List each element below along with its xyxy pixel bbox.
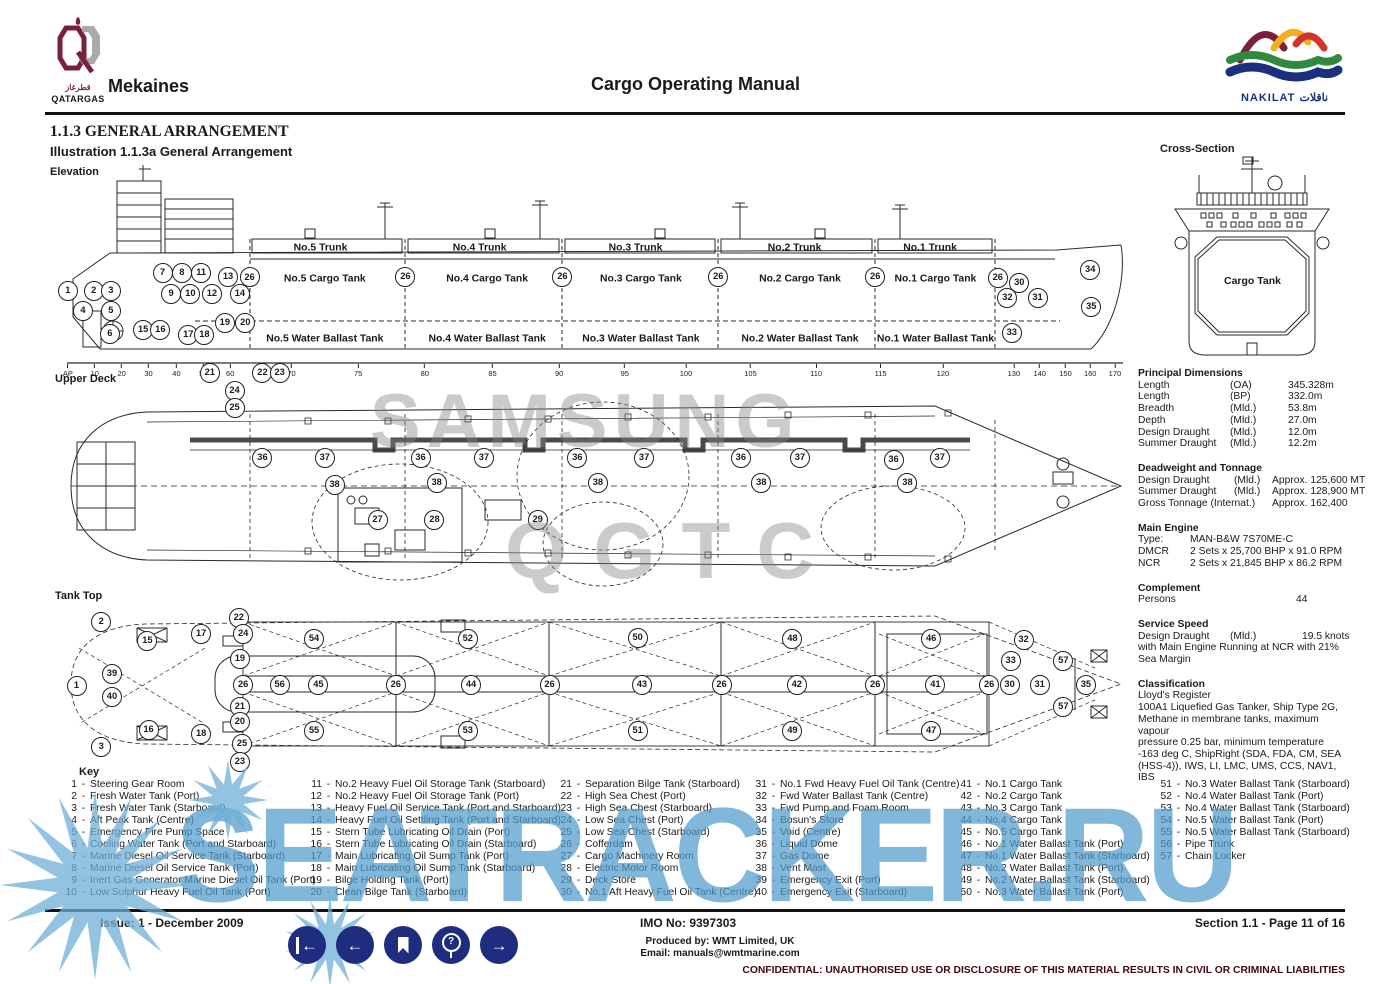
frame-number: 85 xyxy=(488,364,496,378)
principal-dimensions-row: Length(BP)332.0m xyxy=(1138,391,1353,403)
key-item-2: 2-Fresh Water Tank (Port) xyxy=(57,791,316,803)
diagram-label: No.4 Water Ballast Tank xyxy=(429,334,546,345)
callout-circle-26: 26 xyxy=(386,675,406,695)
callout-circle-28: 28 xyxy=(424,510,444,530)
search-button[interactable]: ? xyxy=(432,926,470,964)
key-item-13: 13-Heavy Fuel Oil Service Tank (Port and… xyxy=(302,803,561,815)
key-item-32: 32-Fwd Water Ballast Tank (Centre) xyxy=(747,791,960,803)
classification-line: Lloyd's Register xyxy=(1138,690,1353,702)
service-speed-row: Design Draught(Mld.)19.5 knots xyxy=(1138,631,1353,643)
callout-circle-6: 6 xyxy=(100,324,120,344)
service-speed-section: Service SpeedDesign Draught(Mld.)19.5 kn… xyxy=(1138,619,1353,666)
callout-circle-51: 51 xyxy=(628,721,648,741)
frame-number: 120 xyxy=(937,364,950,378)
classification-line: Methane in membrane tanks, maximum vapou… xyxy=(1138,714,1353,737)
callout-circle-26: 26 xyxy=(233,675,253,695)
main-engine-title: Main Engine xyxy=(1138,523,1353,535)
callout-circle-46: 46 xyxy=(921,629,941,649)
header-divider xyxy=(45,112,1345,115)
callout-circle-16: 16 xyxy=(150,320,170,340)
callout-circle-8: 8 xyxy=(172,263,192,283)
key-item-17: 17-Main Lubricating Oil Sump Tank (Port) xyxy=(302,851,561,863)
footer-imo-number: IMO No: 9397303 xyxy=(640,916,736,930)
deadweight-tonnage-row: Summer Draught(Mld.)Approx. 128,900 MT xyxy=(1138,486,1353,498)
callout-circle-43: 43 xyxy=(632,675,652,695)
diagram-label: No.3 Water Ballast Tank xyxy=(582,334,699,345)
frame-number: 75 xyxy=(354,364,362,378)
key-item-46: 46-No.1 Water Ballast Tank (Port) xyxy=(952,839,1150,851)
key-item-20: 20-Clean Bilge Tank (Starboard) xyxy=(302,887,561,899)
classification-section: ClassificationLloyd's Register100A1 Liqu… xyxy=(1138,679,1353,784)
callout-circle-33: 33 xyxy=(1001,651,1021,671)
key-item-40: 40-Emergency Exit (Starboard) xyxy=(747,887,960,899)
callout-circle-29: 29 xyxy=(528,510,548,530)
callout-circle-24: 24 xyxy=(233,624,253,644)
key-item-12: 12-No.2 Heavy Fuel Oil Storage Tank (Por… xyxy=(302,791,561,803)
cross-section-diagram: Cross-Section xyxy=(1155,143,1350,368)
footer-divider xyxy=(45,909,1345,912)
main-engine-section: Main EngineType:MAN-B&W 7S70ME-CDMCR2 Se… xyxy=(1138,523,1353,570)
callout-circle-26: 26 xyxy=(988,268,1008,288)
callout-circle-38: 38 xyxy=(751,473,771,493)
main-engine-row: DMCR2 Sets x 25,700 BHP x 91.0 RPM xyxy=(1138,546,1353,558)
service-speed-title: Service Speed xyxy=(1138,619,1353,631)
frame-number: 115 xyxy=(875,364,887,378)
callout-circle-38: 38 xyxy=(427,473,447,493)
callout-circle-35: 35 xyxy=(1076,675,1096,695)
key-item-44: 44-No.4 Cargo Tank xyxy=(952,815,1150,827)
key-item-5: 5-Emergency Fire Pump Space xyxy=(57,827,316,839)
key-column-1: 1-Steering Gear Room2-Fresh Water Tank (… xyxy=(57,779,316,899)
callout-circle-54: 54 xyxy=(304,629,324,649)
frame-number: 95 xyxy=(621,364,629,378)
key-item-34: 34-Bosun's Store xyxy=(747,815,960,827)
frame-number: 100 xyxy=(680,364,693,378)
callout-circle-47: 47 xyxy=(921,721,941,741)
frame-number: 140 xyxy=(1033,364,1046,378)
callout-circle-36: 36 xyxy=(731,448,751,468)
key-item-6: 6-Cooling Water Tank (Port and Starboard… xyxy=(57,839,316,851)
next-page-button[interactable] xyxy=(480,926,518,964)
service-speed-line: with Main Engine Running at NCR with 21% xyxy=(1138,642,1353,654)
callout-circle-37: 37 xyxy=(634,448,654,468)
frame-number: 150 xyxy=(1059,364,1072,378)
key-item-3: 3-Fresh Water Tank (Starboard) xyxy=(57,803,316,815)
callout-circle-16: 16 xyxy=(139,720,159,740)
callout-circle-19: 19 xyxy=(230,649,250,669)
callout-circle-36: 36 xyxy=(252,448,272,468)
key-item-43: 43-No.3 Cargo Tank xyxy=(952,803,1150,815)
frame-number: 40 xyxy=(172,364,180,378)
key-item-28: 28-Electric Motor Room xyxy=(552,863,757,875)
diagram-label: No.1 Water Ballast Tank xyxy=(877,334,994,345)
manual-page: قطرغاز QATARGAS Mekaines Cargo Operating… xyxy=(0,0,1391,984)
principal-dimensions-row: Design Draught(Mld.)12.0m xyxy=(1138,427,1353,439)
footer-produced-by: Produced by: WMT Limited, UK xyxy=(630,936,810,947)
callout-circle-37: 37 xyxy=(790,448,810,468)
info-panel: Principal DimensionsLength(OA)345.328mLe… xyxy=(1138,368,1353,797)
document-title: Cargo Operating Manual xyxy=(0,74,1391,95)
principal-dimensions-title: Principal Dimensions xyxy=(1138,368,1353,380)
key-item-14: 14-Heavy Fuel Oil Settling Tank (Port an… xyxy=(302,815,561,827)
complement-section: ComplementPersons44 xyxy=(1138,583,1353,606)
elevation-diagram: 1234567811132691012141516171819202122232… xyxy=(55,163,1130,378)
callout-circle-4: 4 xyxy=(73,301,93,321)
callout-circle-56: 56 xyxy=(270,675,290,695)
callout-circle-53: 53 xyxy=(458,721,478,741)
callout-circle-37: 37 xyxy=(930,448,950,468)
deadweight-tonnage-section: Deadweight and TonnageDesign Draught(Mld… xyxy=(1138,463,1353,510)
diagram-label: No.2 Trunk xyxy=(768,242,822,253)
key-column-4: 31-No.1 Fwd Heavy Fuel Oil Tank (Centre)… xyxy=(747,779,960,899)
frame-number: 130 xyxy=(1008,364,1021,378)
principal-dimensions-section: Principal DimensionsLength(OA)345.328mLe… xyxy=(1138,368,1353,450)
key-item-27: 27-Cargo Machinery Room xyxy=(552,851,757,863)
callout-circle-5: 5 xyxy=(101,301,121,321)
tank-top-label: Tank Top xyxy=(55,590,102,602)
diagram-label: No.3 Trunk xyxy=(609,242,663,253)
callout-circle-45: 45 xyxy=(308,675,328,695)
previous-page-button[interactable] xyxy=(336,926,374,964)
callout-circle-36: 36 xyxy=(567,448,587,468)
callout-circle-32: 32 xyxy=(997,288,1017,308)
callout-circle-57: 57 xyxy=(1053,651,1073,671)
key-item-57: 57-Chain Locker xyxy=(1152,851,1350,863)
callout-circle-31: 31 xyxy=(1030,675,1050,695)
service-speed-line: Sea Margin xyxy=(1138,654,1353,666)
classification-line: (HSS-4)), IWS, LI, LMC, UMS, CCS, NAV1, … xyxy=(1138,761,1353,784)
question-magnifier-icon: ? xyxy=(442,933,461,958)
illustration-title: Illustration 1.1.3a General Arrangement xyxy=(50,144,292,159)
callout-circle-38: 38 xyxy=(325,475,345,495)
arrow-left-icon xyxy=(347,937,364,954)
callout-circle-49: 49 xyxy=(782,721,802,741)
key-item-48: 48-No.2 Water Ballast Tank (Port) xyxy=(952,863,1150,875)
key-item-11: 11-No.2 Heavy Fuel Oil Storage Tank (Sta… xyxy=(302,779,561,791)
classification-line: pressure 0.25 bar, minimum temperature xyxy=(1138,737,1353,749)
key-item-1: 1-Steering Gear Room xyxy=(57,779,316,791)
key-item-54: 54-No.5 Water Ballast Tank (Port) xyxy=(1152,815,1350,827)
callout-circle-1: 1 xyxy=(58,281,78,301)
qatargas-logo-icon xyxy=(52,14,104,76)
callout-circle-38: 38 xyxy=(588,473,608,493)
callout-circle-18: 18 xyxy=(191,724,211,744)
frame-number: 110 xyxy=(810,364,822,378)
callout-circle-18: 18 xyxy=(194,325,214,345)
callout-circle-12: 12 xyxy=(202,284,222,304)
key-item-16: 16-Stern Tube Lubricating Oil Drain (Sta… xyxy=(302,839,561,851)
main-engine-row: NCR2 Sets x 21,845 BHP x 86.2 RPM xyxy=(1138,558,1353,570)
callout-circle-26: 26 xyxy=(395,267,415,287)
callout-circle-26: 26 xyxy=(865,675,885,695)
key-item-35: 35-Void (Centre) xyxy=(747,827,960,839)
callout-circle-34: 34 xyxy=(1080,260,1100,280)
key-column-2: 11-No.2 Heavy Fuel Oil Storage Tank (Sta… xyxy=(302,779,561,899)
callout-circle-19: 19 xyxy=(215,313,235,333)
callout-circle-36: 36 xyxy=(884,450,904,470)
principal-dimensions-row: Breadth(Mld.)53.8m xyxy=(1138,403,1353,415)
key-item-19: 19-Bilge Holding Tank (Port) xyxy=(302,875,561,887)
key-item-31: 31-No.1 Fwd Heavy Fuel Oil Tank (Centre) xyxy=(747,779,960,791)
callout-circle-20: 20 xyxy=(235,313,255,333)
diagram-label: No.5 Trunk xyxy=(294,242,348,253)
footer-section-page: Section 1.1 - Page 11 of 16 xyxy=(1195,916,1345,930)
callout-circle-11: 11 xyxy=(191,263,211,283)
footer-email: Email: manuals@wmtmarine.com xyxy=(630,948,810,959)
nakilat-logo-icon xyxy=(1222,8,1347,88)
deadweight-tonnage-row: Design Draught(Mld.)Approx. 125,600 MT xyxy=(1138,475,1353,487)
diagram-label: No.2 Cargo Tank xyxy=(759,274,841,285)
diagram-label: No.5 Cargo Tank xyxy=(284,274,366,285)
callout-circle-31: 31 xyxy=(1028,288,1048,308)
callout-circle-41: 41 xyxy=(925,675,945,695)
key-item-42: 42-No.2 Cargo Tank xyxy=(952,791,1150,803)
key-item-47: 47-No.1 Water Ballast Tank (Starboard) xyxy=(952,851,1150,863)
callout-circle-20: 20 xyxy=(230,712,250,732)
frame-number: 60 xyxy=(226,364,234,378)
key-item-23: 23-High Sea Chest (Starboard) xyxy=(552,803,757,815)
deadweight-tonnage-title: Deadweight and Tonnage xyxy=(1138,463,1353,475)
diagram-label: No.3 Cargo Tank xyxy=(600,274,682,285)
footer-issue: Issue: 1 - December 2009 xyxy=(100,916,243,930)
callout-circle-25: 25 xyxy=(225,398,245,418)
key-item-53: 53-No.4 Water Ballast Tank (Starboard) xyxy=(1152,803,1350,815)
key-item-36: 36-Liquid Dome xyxy=(747,839,960,851)
key-column-5: 41-No.1 Cargo Tank42-No.2 Cargo Tank43-N… xyxy=(952,779,1150,899)
callout-circle-55: 55 xyxy=(304,721,324,741)
classification-title: Classification xyxy=(1138,679,1353,691)
callout-circle-23: 23 xyxy=(230,752,250,772)
key-item-25: 25-Low Sea Chest (Starboard) xyxy=(552,827,757,839)
key-column-3: 21-Separation Bilge Tank (Starboard)22-H… xyxy=(552,779,757,899)
key-item-39: 39-Emergency Exit (Port) xyxy=(747,875,960,887)
diagram-label: No.1 Cargo Tank xyxy=(895,274,977,285)
callout-circle-52: 52 xyxy=(458,629,478,649)
callout-circle-26: 26 xyxy=(865,267,885,287)
callout-circle-30: 30 xyxy=(1000,675,1020,695)
callout-circle-17: 17 xyxy=(191,624,211,644)
classification-line: 100A1 Liquefied Gas Tanker, Ship Type 2G… xyxy=(1138,702,1353,714)
callout-circle-26: 26 xyxy=(708,267,728,287)
nakilat-wordmark: NAKILAT ناقلات xyxy=(1222,91,1347,104)
diagram-label: No.1 Trunk xyxy=(903,242,957,253)
callout-circle-48: 48 xyxy=(782,629,802,649)
frame-number: 20 xyxy=(117,364,125,378)
key-item-50: 50-No.3 Water Ballast Tank (Port) xyxy=(952,887,1150,899)
tank-top-drawing xyxy=(55,598,1130,770)
key-item-49: 49-No.2 Water Ballast Tank (Starboard) xyxy=(952,875,1150,887)
key-item-38: 38-Vent Mast xyxy=(747,863,960,875)
key-item-33: 33-Fwd Pump and Foam Room xyxy=(747,803,960,815)
callout-circle-50: 50 xyxy=(628,628,648,648)
deadweight-tonnage-row: Gross Tonnage (Internat.)Approx. 162,400 xyxy=(1138,498,1353,510)
diagram-label: No.5 Water Ballast Tank xyxy=(266,334,383,345)
callout-circle-37: 37 xyxy=(474,448,494,468)
elevation-drawing xyxy=(55,163,1130,378)
callout-circle-26: 26 xyxy=(552,267,572,287)
callout-circle-38: 38 xyxy=(897,473,917,493)
cross-section-tank-label: Cargo Tank xyxy=(1224,275,1281,287)
cross-section-drawing xyxy=(1155,143,1350,368)
callout-circle-9: 9 xyxy=(161,284,181,304)
key-item-26: 26-Cofferdam xyxy=(552,839,757,851)
key-item-10: 10-Low Sulphur Heavy Fuel Oil Tank (Port… xyxy=(57,887,316,899)
callout-circle-15: 15 xyxy=(137,631,157,651)
nakilat-logo: NAKILAT ناقلات xyxy=(1222,8,1347,108)
callout-circle-35: 35 xyxy=(1081,297,1101,317)
callout-circle-25: 25 xyxy=(232,734,252,754)
principal-dimensions-row: Depth(Mld.)27.0m xyxy=(1138,415,1353,427)
section-title: 1.1.3 GENERAL ARRANGEMENT xyxy=(50,123,289,141)
callout-circle-2: 2 xyxy=(91,612,111,632)
diagram-label: No.4 Cargo Tank xyxy=(446,274,528,285)
footer-confidential-notice: CONFIDENTIAL: UNAUTHORISED USE OR DISCLO… xyxy=(742,965,1345,976)
callout-circle-37: 37 xyxy=(315,448,335,468)
callout-circle-10: 10 xyxy=(180,284,200,304)
callout-circle-14: 14 xyxy=(230,284,250,304)
callout-circle-26: 26 xyxy=(712,675,732,695)
callout-circle-57: 57 xyxy=(1053,697,1073,717)
tank-top-diagram: 2151722241939140265645542652442621201618… xyxy=(55,598,1130,770)
frame-number: 170 xyxy=(1109,364,1122,378)
callout-circle-27: 27 xyxy=(368,510,388,530)
frame-number: 160 xyxy=(1084,364,1097,378)
key-item-29: 29-Deck Store xyxy=(552,875,757,887)
upper-deck-label: Upper Deck xyxy=(55,373,116,385)
key-item-22: 22-High Sea Chest (Port) xyxy=(552,791,757,803)
callout-circle-39: 39 xyxy=(102,664,122,684)
callout-circle-44: 44 xyxy=(461,675,481,695)
key-item-41: 41-No.1 Cargo Tank xyxy=(952,779,1150,791)
diagram-label: No.2 Water Ballast Tank xyxy=(741,334,858,345)
elevation-label: Elevation xyxy=(50,166,99,178)
frame-number: 80 xyxy=(421,364,429,378)
frame-number: 90 xyxy=(555,364,563,378)
key-item-9: 9-Inert Gas Generator Marine Diesel Oil … xyxy=(57,875,316,887)
key-title: Key xyxy=(79,766,99,778)
key-item-8: 8-Marine Diesel Oil Service Tank (Port) xyxy=(57,863,316,875)
key-item-21: 21-Separation Bilge Tank (Starboard) xyxy=(552,779,757,791)
first-page-icon xyxy=(296,937,318,954)
callout-circle-7: 7 xyxy=(153,263,173,283)
frame-number: 30 xyxy=(144,364,152,378)
diagram-label: No.4 Trunk xyxy=(453,242,507,253)
callout-circle-1: 1 xyxy=(67,676,87,696)
callout-circle-32: 32 xyxy=(1014,630,1034,650)
callout-circle-33: 33 xyxy=(1002,323,1022,343)
key-item-30: 30-No.1 Aft Heavy Fuel Oil Tank (Centre) xyxy=(552,887,757,899)
principal-dimensions-row: Summer Draught(Mld.)12.2m xyxy=(1138,438,1353,450)
key-item-56: 56-Pipe Trunk xyxy=(1152,839,1350,851)
arrow-right-icon xyxy=(491,937,508,954)
callout-circle-26: 26 xyxy=(979,675,999,695)
complement-title: Complement xyxy=(1138,583,1353,595)
callout-circle-3: 3 xyxy=(101,281,121,301)
main-engine-row: Type:MAN-B&W 7S70ME-C xyxy=(1138,534,1353,546)
key-item-18: 18-Main Lubricating Oil Sump Tank (Starb… xyxy=(302,863,561,875)
bookmark-button[interactable] xyxy=(384,926,422,964)
key-item-7: 7-Marine Diesel Oil Service Tank (Starbo… xyxy=(57,851,316,863)
bookmark-icon xyxy=(398,937,409,954)
first-page-button[interactable] xyxy=(288,926,326,964)
key-item-45: 45-No.5 Cargo Tank xyxy=(952,827,1150,839)
navigation-toolbar: ? xyxy=(288,926,518,964)
callout-circle-26: 26 xyxy=(540,675,560,695)
complement-row: Persons44 xyxy=(1138,594,1353,606)
frame-number: 105 xyxy=(744,364,757,378)
callout-circle-3: 3 xyxy=(91,737,111,757)
callout-circle-42: 42 xyxy=(787,675,807,695)
key-item-55: 55-No.5 Water Ballast Tank (Starboard) xyxy=(1152,827,1350,839)
key-item-37: 37-Gas Dome xyxy=(747,851,960,863)
principal-dimensions-row: Length(OA)345.328m xyxy=(1138,380,1353,392)
key-item-24: 24-Low Sea Chest (Port) xyxy=(552,815,757,827)
key-item-4: 4-Aft Peak Tank (Centre) xyxy=(57,815,316,827)
key-item-15: 15-Stern Tube Lubricating Oil Drain (Por… xyxy=(302,827,561,839)
qatargas-wordmark: QATARGAS xyxy=(46,94,110,104)
callout-circle-40: 40 xyxy=(102,687,122,707)
callout-circle-36: 36 xyxy=(411,448,431,468)
upper-deck-diagram: 2425363636363637373737373838383838272829 xyxy=(55,380,1130,592)
classification-line: -163 deg C, ShipRight (SDA, FDA, CM, SEA xyxy=(1138,749,1353,761)
